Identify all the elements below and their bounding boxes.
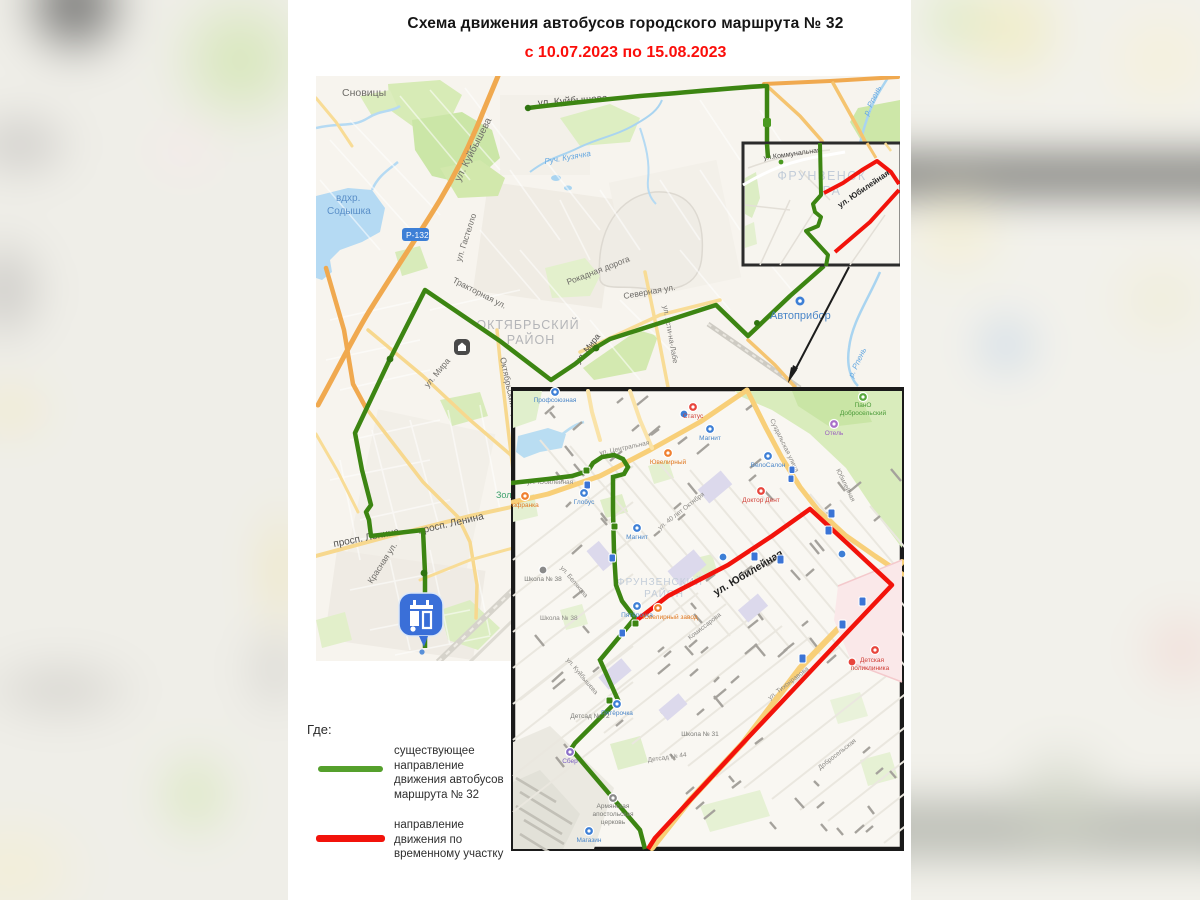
svg-text:Школа № 38: Школа № 38 <box>540 615 578 622</box>
svg-text:апостольская: апостольская <box>593 811 634 818</box>
svg-text:Глобус: Глобус <box>574 498 595 506</box>
svg-text:Содышка: Содышка <box>327 206 371 217</box>
svg-text:Школа № 31: Школа № 31 <box>681 731 719 738</box>
svg-text:Р-132: Р-132 <box>406 230 429 240</box>
svg-text:Магнит: Магнит <box>699 435 721 442</box>
svg-text:Ювелирный: Ювелирный <box>650 458 687 466</box>
svg-text:ВелоСалон: ВелоСалон <box>751 462 786 469</box>
svg-text:вдхр.: вдхр. <box>336 193 360 204</box>
svg-text:Отель: Отель <box>825 430 844 437</box>
svg-text:Детсад № 72: Детсад № 72 <box>570 713 610 720</box>
svg-text:поликлиника: поликлиника <box>851 665 890 672</box>
svg-text:Школа № 38: Школа № 38 <box>524 576 562 583</box>
svg-text:РАЙОН: РАЙОН <box>507 332 556 347</box>
svg-text:ПанО: ПанО <box>855 402 872 409</box>
svg-text:Профсоюзная: Профсоюзная <box>534 397 577 404</box>
svg-text:Сбер: Сбер <box>562 757 578 765</box>
svg-text:Детская: Детская <box>860 657 885 664</box>
svg-text:Магнит: Магнит <box>626 534 648 541</box>
svg-text:ОКТЯБРЬСКИЙ: ОКТЯБРЬСКИЙ <box>476 317 579 332</box>
svg-text:Сновицы: Сновицы <box>342 87 386 99</box>
svg-text:Статус: Статус <box>683 413 704 420</box>
svg-text:Добросельский: Добросельский <box>840 409 887 417</box>
svg-text:Лизфранка: Лизфранка <box>511 502 539 509</box>
svg-text:Магазин: Магазин <box>576 837 601 844</box>
svg-text:церковь: церковь <box>601 819 626 826</box>
svg-text:Доктор Дент: Доктор Дент <box>742 497 780 504</box>
svg-text:Ювелирный завод: Ювелирный завод <box>642 613 698 621</box>
svg-text:Зол: Зол <box>496 490 512 500</box>
svg-text:Армянская: Армянская <box>597 803 630 810</box>
